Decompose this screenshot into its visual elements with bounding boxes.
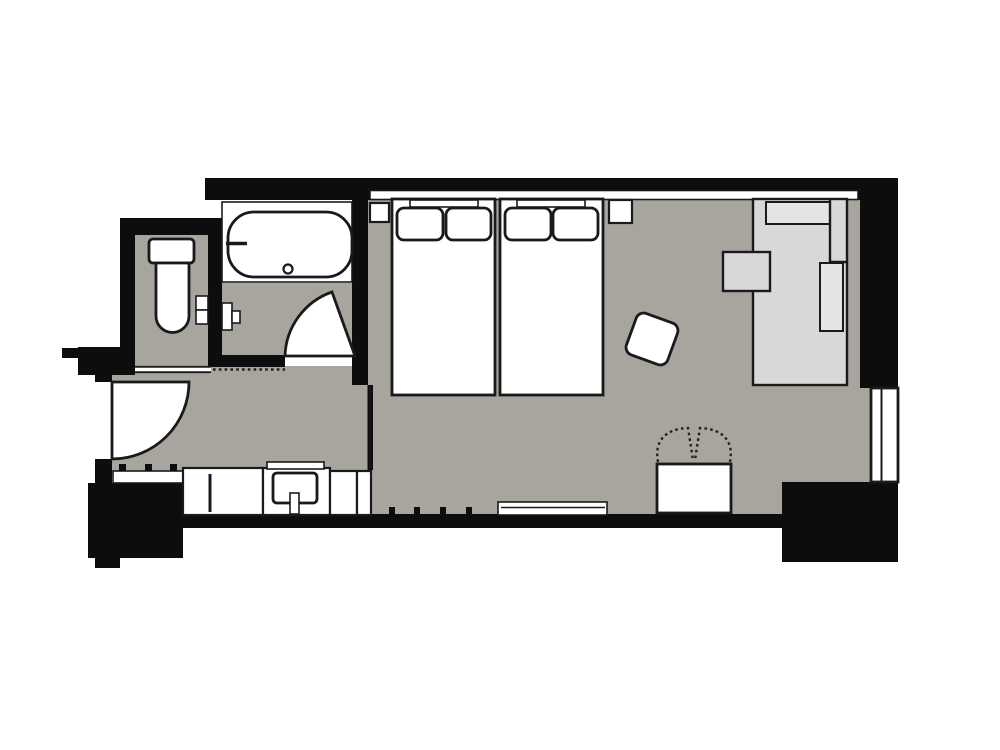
pillow	[446, 208, 491, 240]
desk-chair	[723, 252, 770, 291]
closet	[183, 468, 263, 515]
left-wall-below-door	[95, 459, 112, 483]
vanity-unit	[263, 462, 330, 515]
cabinet-section	[357, 471, 371, 515]
bathroom-bottom-wall	[208, 355, 285, 367]
toilet-paper-holder	[196, 296, 208, 310]
bottom-left-column	[88, 483, 183, 558]
floor-plan-canvas	[0, 0, 1000, 750]
desk-shelf	[766, 202, 830, 224]
left-wall-tab	[62, 348, 78, 358]
floor-plan	[0, 0, 1000, 750]
left-wall-above-door	[95, 347, 112, 382]
pillow	[553, 208, 598, 240]
luggage-rack-top	[657, 464, 731, 513]
low-board	[498, 502, 607, 515]
bed-headboard	[410, 200, 478, 207]
vanity-counter-lip	[267, 462, 324, 469]
bed-2	[500, 199, 603, 395]
washbasin-tap	[290, 493, 299, 514]
right-wall	[860, 178, 898, 388]
bed-1	[392, 199, 495, 395]
nightstand-right	[609, 200, 632, 223]
entrance-step	[113, 471, 183, 483]
wall-tick	[389, 507, 395, 514]
desk-side-shelf	[820, 263, 843, 331]
wall-tick	[466, 507, 472, 514]
nightstand-left	[370, 203, 389, 222]
bottom-left-column-foot	[95, 558, 120, 568]
toilet-tank	[149, 239, 194, 263]
bath-wall-tap	[232, 311, 240, 323]
bath-wall-basin	[222, 303, 232, 330]
toilet-controls	[196, 310, 208, 324]
toilet-bath-divider-wall	[208, 218, 222, 367]
toilet-sliding-door	[135, 366, 211, 373]
wall-tick	[414, 507, 420, 514]
mini-fridge	[330, 471, 357, 515]
toilet-left-wall	[120, 218, 135, 375]
door-track-tick	[145, 464, 152, 471]
window	[871, 388, 898, 482]
bathtub-drain	[284, 265, 293, 274]
pillow	[397, 208, 443, 240]
bed-headboard	[517, 200, 585, 207]
door-track-tick	[119, 464, 126, 471]
hall-bedroom-partition	[368, 385, 374, 470]
toilet-top-wall	[120, 218, 222, 235]
toilet-bowl	[156, 263, 189, 333]
wall-tick	[440, 507, 446, 514]
pillow	[505, 208, 551, 240]
door-track-tick	[170, 464, 177, 471]
bottom-right-column	[782, 482, 898, 562]
